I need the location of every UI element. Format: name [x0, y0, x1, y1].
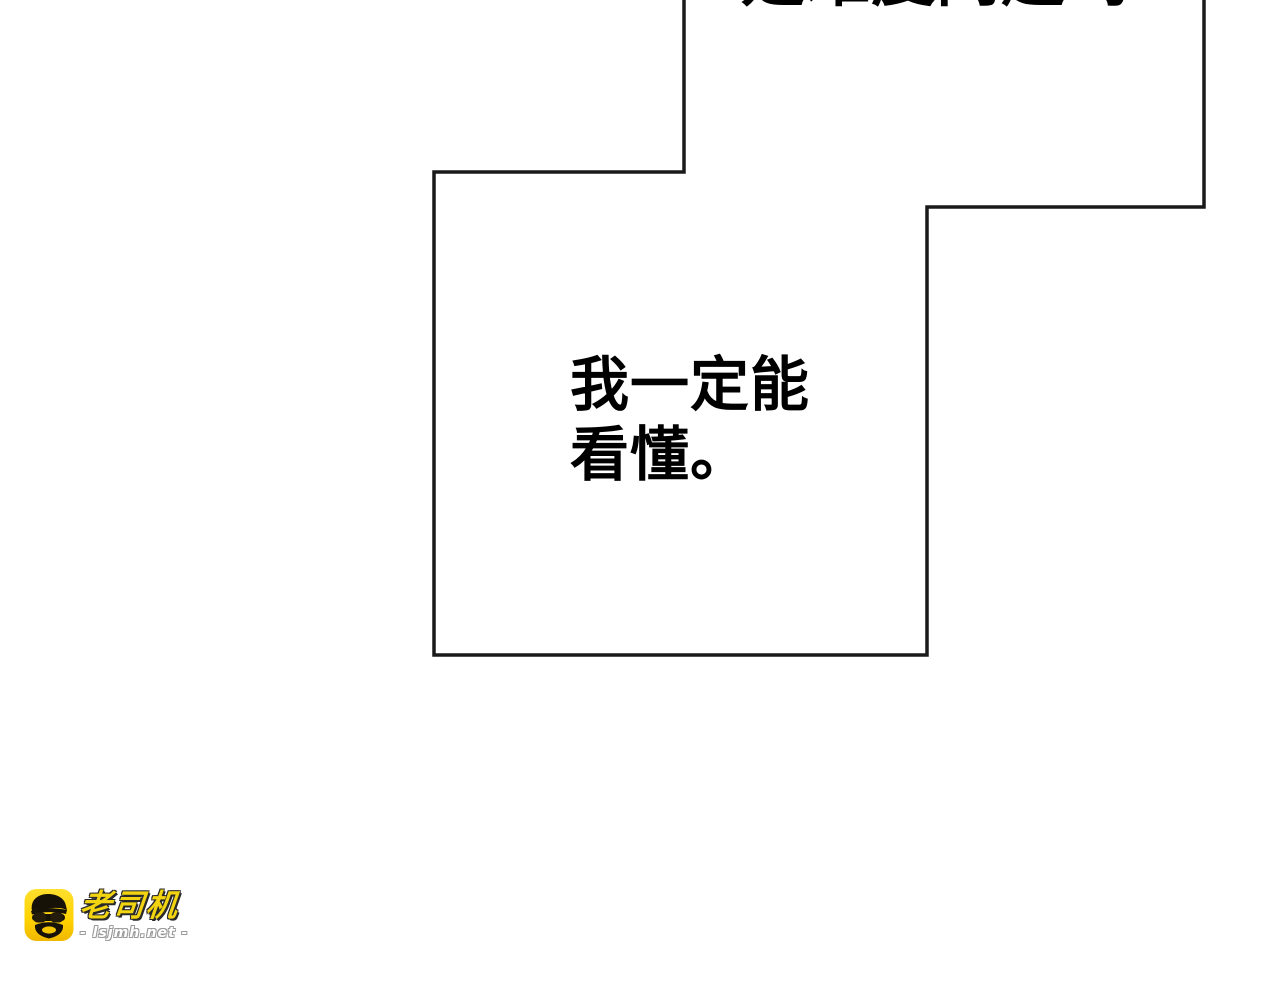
- driver-mascot-icon: [24, 888, 74, 942]
- watermark-site-url: - lsjmh.net -: [80, 925, 188, 941]
- dialogue-line-1: 我一定能: [570, 350, 810, 420]
- watermark-brand: 老司机: [78, 890, 190, 922]
- site-watermark: 老司机 - lsjmh.net -: [24, 888, 188, 942]
- top-bubble-text: 是难度问题吗: [741, 0, 1131, 11]
- main-bubble-text: 我一定能 看懂。: [570, 350, 810, 490]
- speech-bubble-outline: [0, 0, 1280, 1000]
- comic-page: 是难度问题吗 我一定能 看懂。: [0, 0, 1280, 1000]
- watermark-texts: 老司机 - lsjmh.net -: [80, 888, 188, 941]
- dialogue-line-2: 看懂。: [570, 420, 810, 490]
